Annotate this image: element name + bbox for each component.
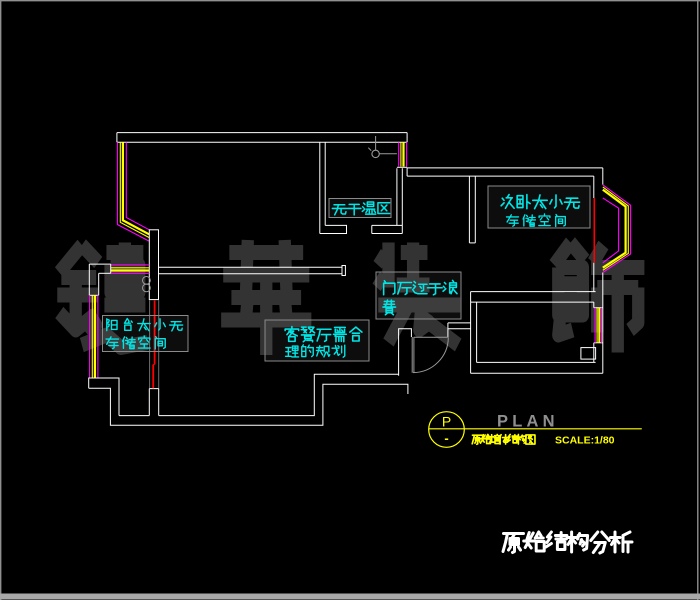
- svg-text:SCALE:1/80: SCALE:1/80: [555, 435, 615, 447]
- svg-text:P: P: [442, 414, 451, 430]
- svg-text:PLAN: PLAN: [497, 413, 559, 431]
- svg-text:-: -: [444, 431, 448, 446]
